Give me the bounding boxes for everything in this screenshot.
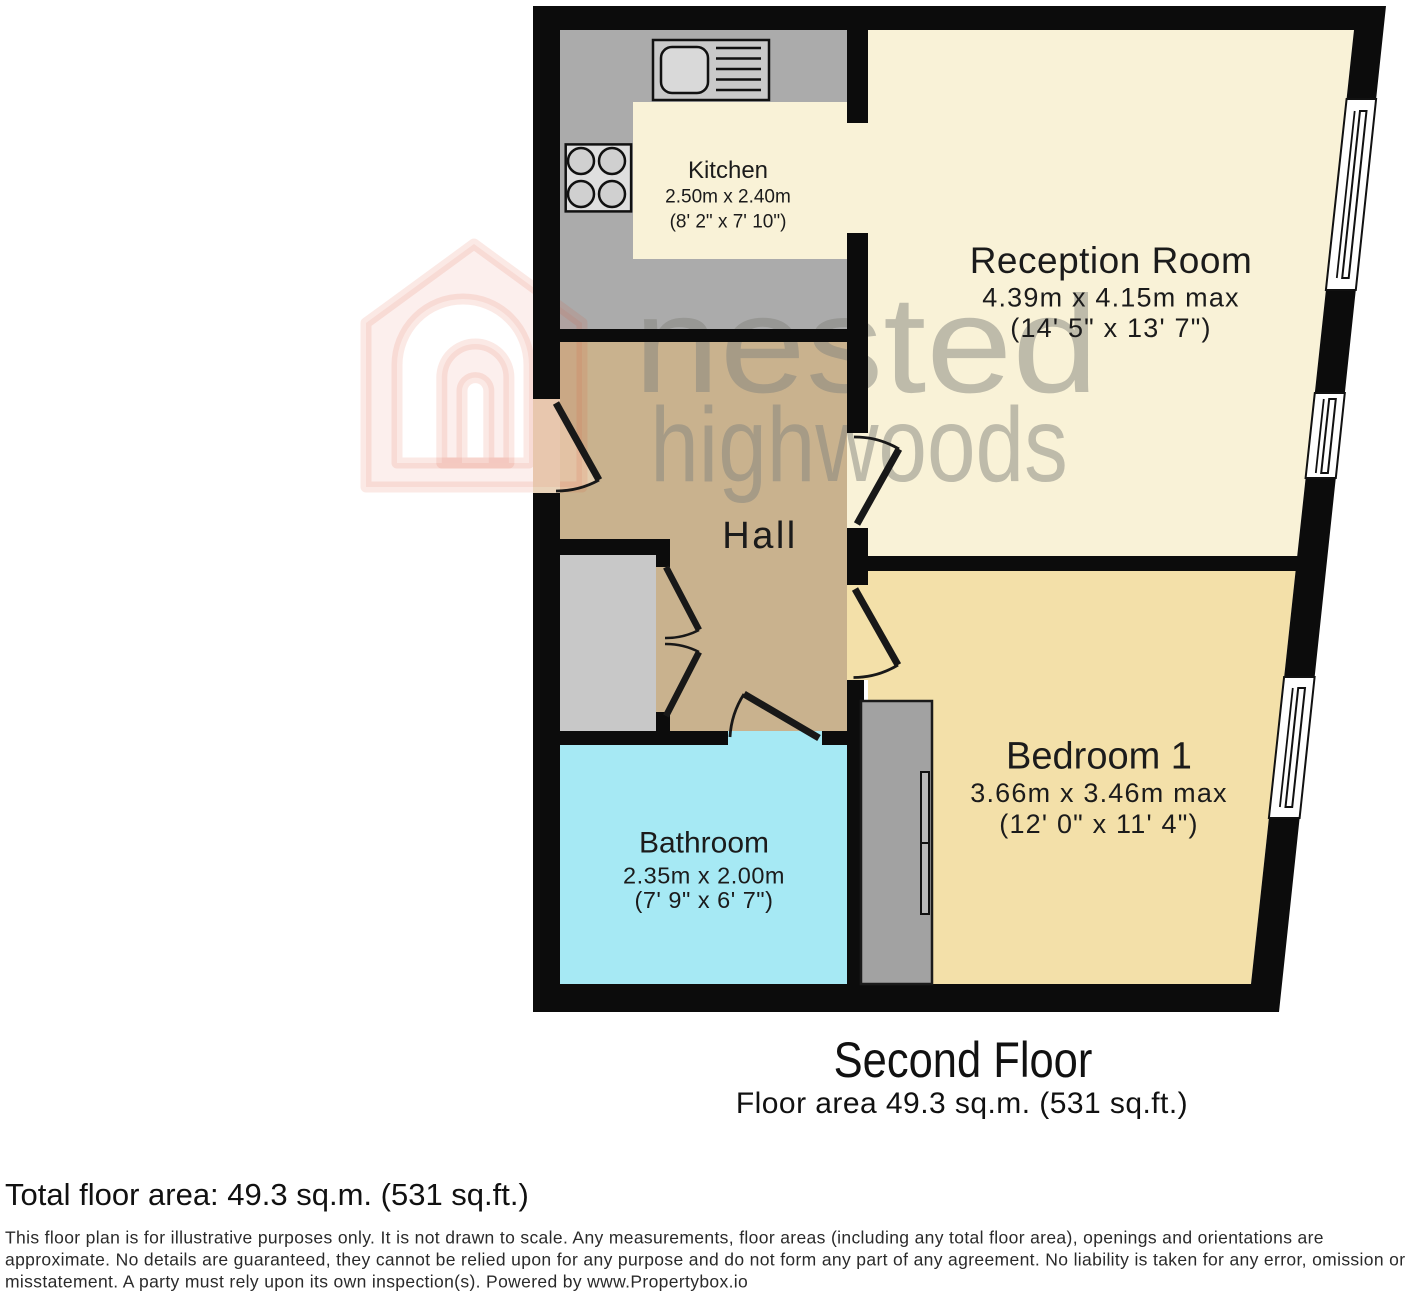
svg-text:Reception Room: Reception Room — [970, 240, 1253, 281]
svg-text:approximate. No details are gu: approximate. No details are guaranteed, … — [5, 1250, 1405, 1270]
svg-text:2.50m x 2.40m: 2.50m x 2.40m — [665, 187, 791, 208]
svg-text:(12' 0" x 11' 4"): (12' 0" x 11' 4") — [999, 809, 1198, 839]
svg-text:Bedroom 1: Bedroom 1 — [1006, 736, 1192, 778]
svg-text:Total floor area: 49.3 sq.m. (: Total floor area: 49.3 sq.m. (531 sq.ft.… — [5, 1177, 529, 1212]
svg-text:4.39m x 4.15m max: 4.39m x 4.15m max — [982, 283, 1240, 313]
svg-text:3.66m x 3.46m max: 3.66m x 3.46m max — [970, 778, 1228, 808]
svg-text:(14' 5" x 13' 7"): (14' 5" x 13' 7") — [1010, 313, 1211, 343]
svg-text:Bathroom: Bathroom — [639, 827, 769, 860]
svg-text:This floor plan is for illustr: This floor plan is for illustrative purp… — [5, 1228, 1324, 1248]
svg-text:2.35m x 2.00m: 2.35m x 2.00m — [623, 863, 785, 889]
svg-text:Second Floor: Second Floor — [834, 1032, 1093, 1087]
svg-text:(7' 9" x 6' 7"): (7' 9" x 6' 7") — [635, 887, 774, 913]
svg-text:Floor area 49.3 sq.m. (531 sq.: Floor area 49.3 sq.m. (531 sq.ft.) — [736, 1087, 1188, 1120]
svg-text:Hall: Hall — [722, 515, 797, 557]
svg-text:misstatement. A party must rel: misstatement. A party must rely upon its… — [5, 1272, 748, 1292]
svg-text:(8' 2" x 7' 10"): (8' 2" x 7' 10") — [670, 212, 787, 233]
svg-text:Kitchen: Kitchen — [688, 157, 768, 184]
